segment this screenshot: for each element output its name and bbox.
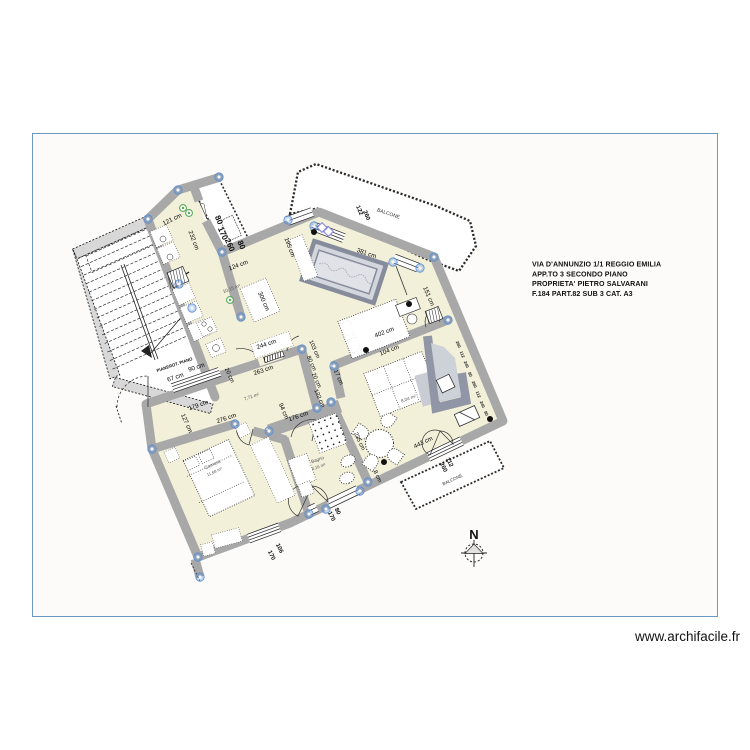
svg-text:APP.TO 3 SECONDO PIANO: APP.TO 3 SECONDO PIANO <box>532 270 628 278</box>
svg-text:VIA D'ANNUNZIO 1/1 REGGIO EMIL: VIA D'ANNUNZIO 1/1 REGGIO EMILIA <box>532 261 661 269</box>
svg-text:N: N <box>469 527 478 542</box>
svg-text:PROPRIETA' PIETRO SALVARANI: PROPRIETA' PIETRO SALVARANI <box>532 280 648 288</box>
svg-text:F.184 PART.82 SUB 3 CAT. A3: F.184 PART.82 SUB 3 CAT. A3 <box>532 290 633 298</box>
svg-text:www.archifacile.fr: www.archifacile.fr <box>634 629 741 644</box>
